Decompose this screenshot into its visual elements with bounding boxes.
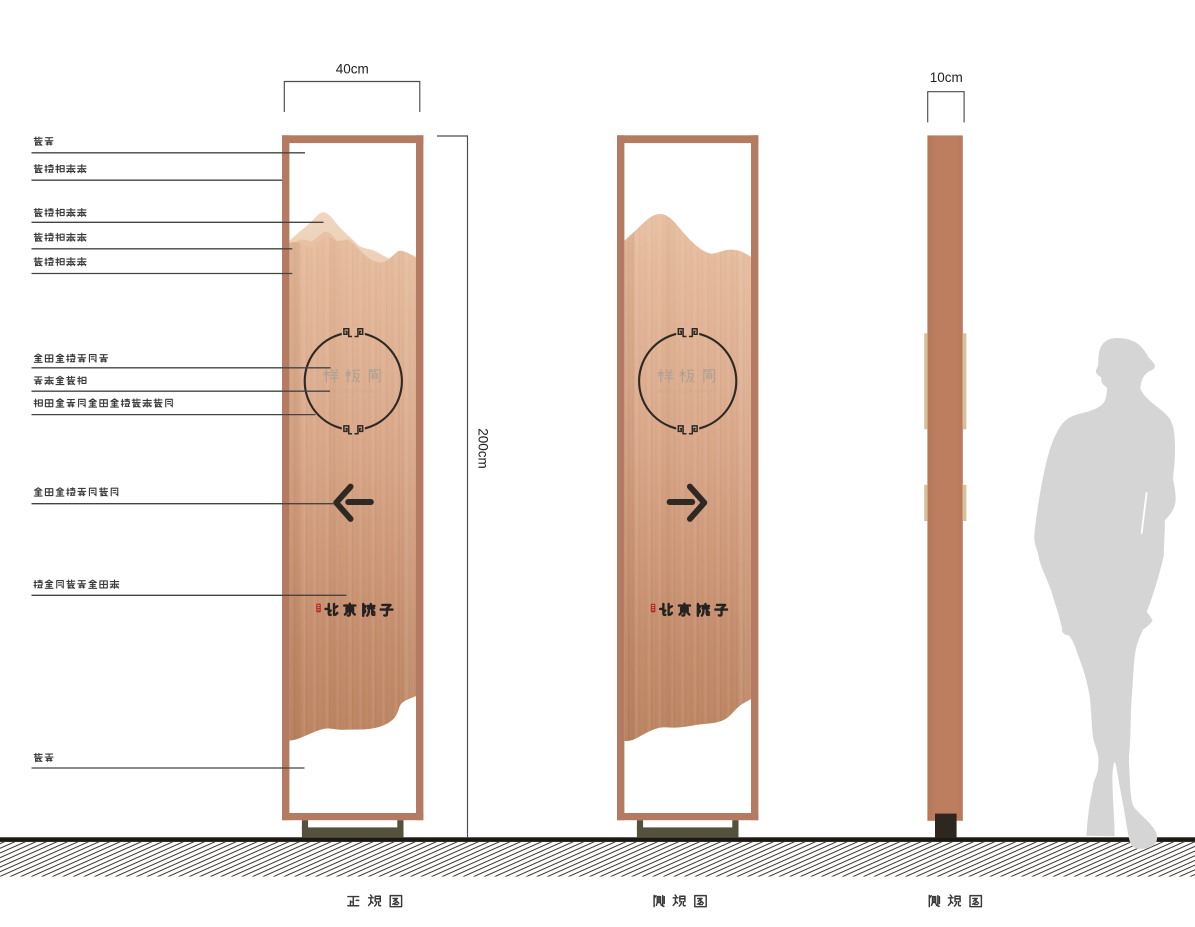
svg-text:MODEL ROOM DISPLAY: MODEL ROOM DISPLAY: [324, 389, 382, 394]
svg-text:MODEL ROOM DISPLAY: MODEL ROOM DISPLAY: [658, 389, 716, 394]
svg-text:10cm: 10cm: [930, 70, 963, 85]
svg-text:40cm: 40cm: [336, 61, 369, 76]
svg-text:200cm: 200cm: [475, 428, 490, 469]
